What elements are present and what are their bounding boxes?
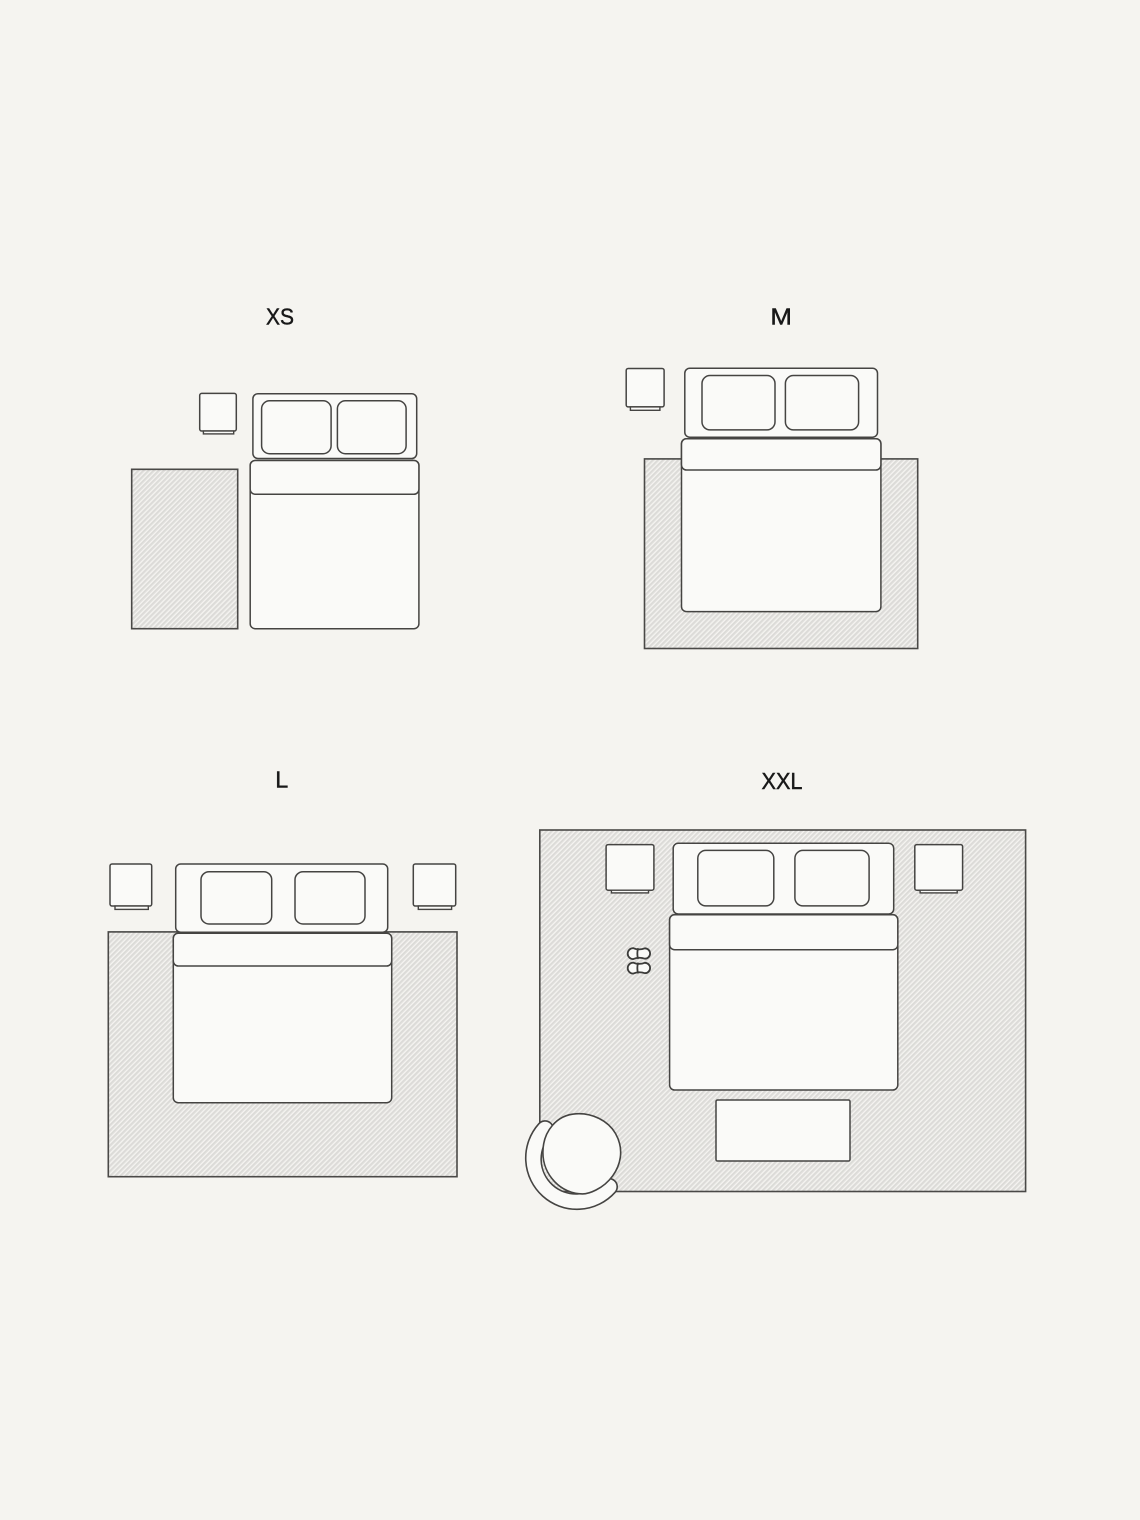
svg-text:M: M — [770, 304, 792, 330]
svg-text:XS: XS — [266, 303, 294, 329]
svg-text:XXL: XXL — [762, 768, 803, 794]
svg-text:L: L — [275, 767, 288, 793]
